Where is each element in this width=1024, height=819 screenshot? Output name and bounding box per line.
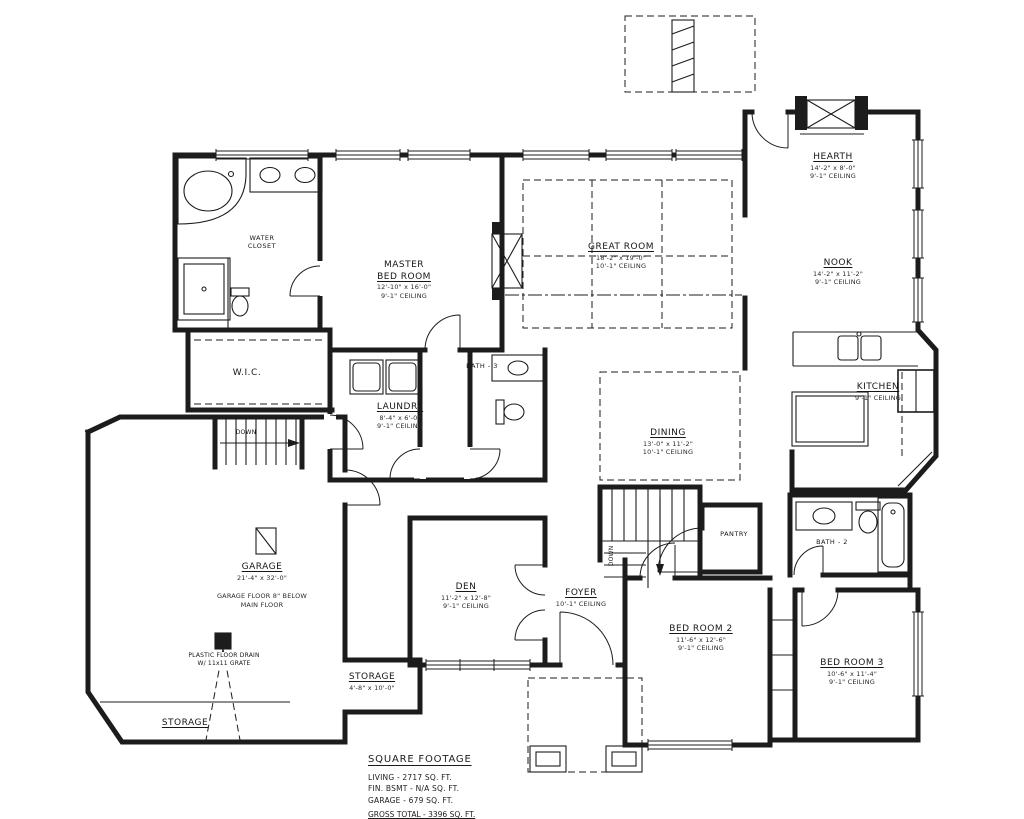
sqft-living: LIVING - 2717 SQ. FT. — [368, 772, 475, 783]
room-label-bath3: BATH - 3 — [466, 362, 498, 370]
room-label-storage-garage: STORAGE — [162, 718, 208, 730]
room-label-garage: GARAGE 21'-4" x 32'-0" GARAGE FLOOR 8" B… — [217, 562, 307, 609]
shower-drain — [202, 287, 206, 291]
sink — [813, 508, 835, 524]
master-vanity — [250, 158, 322, 192]
room-label-hearth: HEARTH 14'-2" x 8'-0" 9'-1" CEILING — [810, 152, 856, 181]
room-label-dining: DINING 13'-0" x 11'-2" 10'-1" CEILING — [643, 428, 693, 457]
down-label-garage-stairs: DOWN — [236, 429, 257, 437]
walls — [88, 112, 936, 745]
stair-treads — [612, 487, 684, 541]
sqft-total: GROSS TOTAL - 3396 SQ. FT. — [368, 809, 475, 819]
porch-column — [606, 746, 642, 772]
room-label-great-room: GREAT ROOM 18'-2" x 19'-0" 10'-1" CEILIN… — [588, 242, 654, 271]
room-label-laundry: LAUNDRY 8'-4" x 6'-0" 9'-1" CEILING — [377, 402, 423, 431]
bath3-vanity — [492, 355, 545, 381]
toilet-tank — [496, 400, 504, 424]
sqft-garage: GARAGE - 679 SQ. FT. — [368, 795, 475, 806]
kitchen-counter — [793, 332, 918, 366]
shower — [178, 258, 230, 320]
corner-tub-platform — [178, 158, 246, 224]
toilet-tank — [231, 288, 249, 296]
door-swings — [290, 112, 838, 665]
bath2-vanity — [796, 502, 852, 530]
toilet — [232, 296, 248, 316]
room-label-water-closet: WATER CLOSET — [248, 234, 276, 251]
room-label-bed2: BED ROOM 2 11'-6" x 12'-6" 9'-1" CEILING — [669, 624, 732, 653]
porch-column — [530, 746, 566, 772]
kitchen-sink — [838, 336, 858, 360]
sink — [295, 168, 315, 183]
tub — [184, 171, 232, 211]
room-label-bed3: BED ROOM 3 10'-6" x 11'-4" 9'-1" CEILING — [820, 658, 883, 687]
tub-faucet — [229, 172, 234, 177]
floor-plan-drawing — [0, 0, 1024, 819]
square-footage-table: SQUARE FOOTAGE LIVING - 2717 SQ. FT. FIN… — [368, 752, 475, 819]
fireplace-masses — [492, 96, 868, 300]
washer — [350, 360, 383, 394]
closet-shelves — [772, 620, 793, 690]
kitchen-sink — [861, 336, 881, 360]
toilet — [504, 404, 524, 420]
room-label-master: MASTER BED ROOM 12'-10" x 16'-0" 9'-1" C… — [377, 260, 431, 300]
dryer — [386, 360, 419, 394]
floor-drain-note: PLASTIC FLOOR DRAIN W/ 11x11 GRATE — [187, 652, 260, 668]
square-footage-title: SQUARE FOOTAGE — [368, 752, 475, 767]
room-label-den: DEN 11'-2" x 12'-8" 9'-1" CEILING — [441, 582, 491, 611]
stair-treads — [226, 419, 296, 465]
tub-drain — [891, 510, 895, 514]
toilet-tank — [856, 502, 880, 510]
toilet — [859, 511, 877, 533]
sink — [260, 168, 280, 183]
room-label-bath2: BATH - 2 — [816, 538, 848, 546]
room-label-nook: NOOK 14'-2" x 11'-2" 9'-1" CEILING — [813, 258, 863, 287]
faucet — [857, 332, 861, 336]
floor-drain — [215, 633, 231, 649]
down-label-basement-stairs: DOWN — [608, 546, 616, 567]
room-label-pantry: PANTRY — [720, 530, 748, 538]
room-label-wic: W.I.C. — [233, 368, 261, 380]
sqft-basement: FIN. BSMT - N/A SQ. FT. — [368, 783, 475, 794]
sink — [508, 361, 528, 375]
room-label-kitchen: KITCHEN 9'-1" CEILING — [855, 382, 901, 402]
room-label-foyer: FOYER 10'-1" CEILING — [556, 588, 606, 608]
floor-plan: MASTER BED ROOM 12'-10" x 16'-0" 9'-1" C… — [0, 0, 1024, 819]
dining-tray-ceiling — [600, 372, 740, 480]
room-label-storage: STORAGE 4'-8" x 10'-0" — [349, 672, 395, 692]
